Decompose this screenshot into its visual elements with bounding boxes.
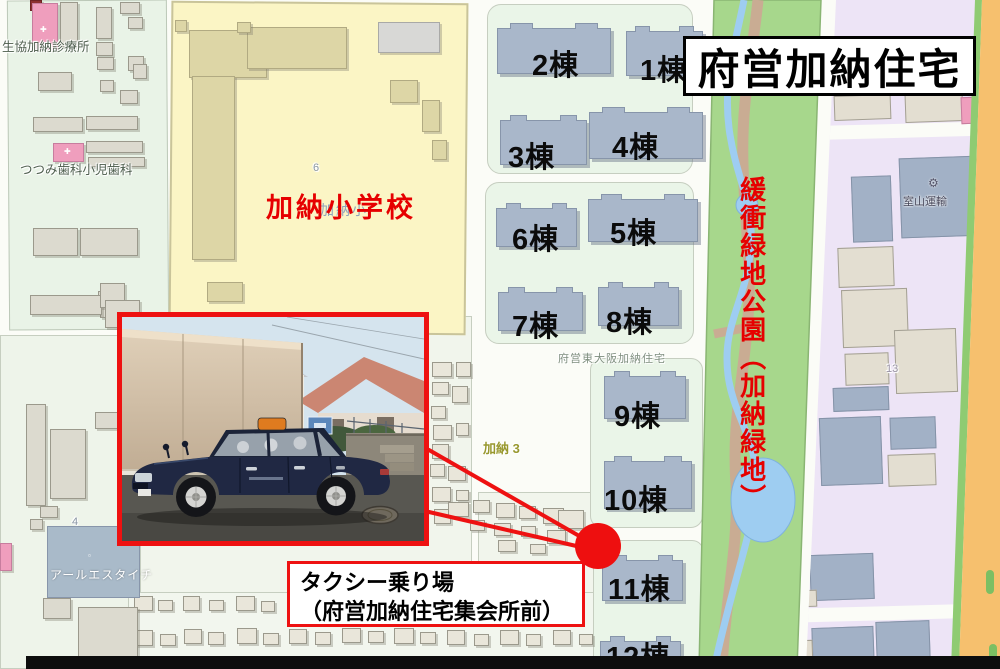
building-label-7: 7棟 xyxy=(512,303,559,345)
hospital-icon: ✚ xyxy=(64,148,71,156)
house xyxy=(96,42,113,56)
house xyxy=(558,510,584,529)
building-label-2: 2棟 xyxy=(532,42,579,84)
taxi-stand-line2: （府営加納住宅集会所前） xyxy=(300,598,572,627)
roof-tab xyxy=(601,194,623,200)
house xyxy=(378,22,440,53)
house xyxy=(50,429,86,499)
house xyxy=(447,630,465,645)
roof-tab xyxy=(614,456,631,462)
building xyxy=(834,94,892,121)
roof-tab xyxy=(635,26,650,32)
house xyxy=(209,600,224,611)
house xyxy=(86,116,138,130)
house xyxy=(192,76,235,260)
house xyxy=(456,490,469,501)
house xyxy=(553,630,571,645)
house xyxy=(496,503,515,518)
roof-tab xyxy=(506,203,522,209)
house xyxy=(247,27,347,69)
house xyxy=(96,7,112,39)
roof-tab xyxy=(560,115,577,121)
building-label-4: 4棟 xyxy=(612,124,659,166)
building xyxy=(875,620,930,660)
road xyxy=(798,604,988,623)
roof-tab xyxy=(667,107,689,113)
house xyxy=(530,544,546,554)
house xyxy=(494,523,511,536)
house xyxy=(26,404,46,506)
house xyxy=(133,64,147,79)
house xyxy=(120,90,138,104)
dental-label: つつみ歯科小児歯科 xyxy=(20,159,133,178)
house xyxy=(237,22,251,33)
muroyama-label: 室山運輸 xyxy=(903,193,947,209)
building-label-11: 11棟 xyxy=(608,566,671,608)
house xyxy=(547,530,566,544)
house xyxy=(521,526,536,537)
building-label-1: 1棟 xyxy=(640,47,687,89)
roof-tab xyxy=(602,107,624,113)
shop-icon: ▫ xyxy=(88,552,91,560)
map-title: 府営加納住宅 xyxy=(683,36,976,96)
hospital-icon: ✚ xyxy=(40,26,47,34)
house xyxy=(100,80,114,92)
roof-tab xyxy=(575,23,597,29)
roof-tab xyxy=(556,287,573,293)
building xyxy=(833,386,890,412)
taxi-roof-sign xyxy=(258,418,286,430)
house xyxy=(432,444,449,459)
district-label: 加納 3 xyxy=(483,438,520,457)
house xyxy=(452,386,468,403)
house xyxy=(315,632,331,645)
annotated-map: ▫ アールエスタイチ 生協加納診療所 ✚ つつみ歯科小児歯科 ✚ 6 加納小 加… xyxy=(0,0,1000,669)
house xyxy=(97,57,114,70)
house xyxy=(432,487,451,502)
house xyxy=(432,140,447,160)
building xyxy=(961,97,975,124)
school-lot-number: 6 xyxy=(313,162,319,174)
roof-tab xyxy=(658,555,674,561)
house xyxy=(33,117,83,132)
building xyxy=(905,92,964,123)
roof-tab xyxy=(508,287,525,293)
factory-icon: ⚙ xyxy=(928,177,939,189)
roof-tab xyxy=(510,115,527,121)
house xyxy=(30,519,43,530)
house xyxy=(498,540,516,552)
lot4-label: 4 xyxy=(72,516,78,528)
building xyxy=(889,416,936,450)
roof-tab xyxy=(654,282,670,288)
park-name-annotation: 緩衝緑地公園（加納緑地） xyxy=(737,176,766,512)
building-label-6: 6棟 xyxy=(512,216,559,258)
house xyxy=(128,17,143,29)
bottom-bar xyxy=(26,656,1000,669)
house xyxy=(263,633,279,645)
house xyxy=(473,500,490,513)
house xyxy=(33,228,78,256)
house xyxy=(474,634,489,646)
house xyxy=(237,628,257,644)
house xyxy=(394,628,414,644)
house xyxy=(422,100,440,132)
rs-taichi-label: アールエスタイチ xyxy=(50,566,153,583)
house xyxy=(432,382,449,395)
house xyxy=(470,520,485,531)
house xyxy=(158,600,173,611)
house xyxy=(0,543,12,571)
roof-tab xyxy=(660,371,676,377)
taxi-stand-line1: タクシー乗り場 xyxy=(300,569,572,598)
house xyxy=(175,20,187,32)
house xyxy=(432,362,452,377)
house xyxy=(184,629,202,644)
industrial-zone xyxy=(798,0,988,669)
building-label-8: 8棟 xyxy=(606,299,653,341)
house xyxy=(448,502,469,517)
house xyxy=(500,630,519,645)
building xyxy=(851,175,893,242)
house xyxy=(579,634,593,645)
house xyxy=(420,632,436,644)
house xyxy=(160,634,176,646)
roof-tab xyxy=(679,26,694,32)
house xyxy=(430,464,445,477)
house xyxy=(526,634,541,646)
school-name-annotation: 加納小学校 xyxy=(266,186,416,225)
house xyxy=(519,506,536,519)
house xyxy=(183,596,200,611)
house xyxy=(43,598,71,619)
building-label-9: 9棟 xyxy=(614,393,661,435)
roof-tab xyxy=(608,282,624,288)
house xyxy=(261,601,275,612)
roof-tab xyxy=(664,194,686,200)
house xyxy=(120,2,140,14)
house xyxy=(86,141,143,153)
building xyxy=(894,328,958,394)
house xyxy=(208,632,224,645)
clinic-label: 生協加納診療所 xyxy=(2,36,90,55)
house xyxy=(80,228,138,256)
building-label-5: 5棟 xyxy=(610,210,657,252)
house xyxy=(368,631,384,643)
building xyxy=(844,352,889,386)
house xyxy=(433,425,452,440)
house xyxy=(207,282,243,302)
house xyxy=(390,80,418,103)
roof-tab xyxy=(664,456,681,462)
roof-tab xyxy=(552,203,568,209)
house xyxy=(342,628,361,643)
house xyxy=(456,423,469,436)
road xyxy=(798,122,988,141)
house xyxy=(30,295,102,315)
house xyxy=(236,596,255,611)
estate-label: 府営東大阪加納住宅 xyxy=(558,350,666,366)
lot13-label: 13 xyxy=(886,363,898,375)
roof-tab xyxy=(510,23,532,29)
building xyxy=(887,453,936,487)
building-label-10: 10棟 xyxy=(604,477,668,519)
house xyxy=(78,607,138,659)
taxi-photo-image xyxy=(122,317,424,541)
house xyxy=(448,466,466,481)
building xyxy=(798,590,818,608)
house xyxy=(289,629,307,644)
house xyxy=(40,506,58,518)
building xyxy=(809,553,875,601)
building xyxy=(819,416,883,486)
house xyxy=(431,406,446,419)
taxi-photo xyxy=(117,312,429,546)
building-label-3: 3棟 xyxy=(508,134,555,176)
taxi-stand-callout: タクシー乗り場 （府営加納住宅集会所前） xyxy=(287,561,585,627)
house xyxy=(456,362,471,377)
building xyxy=(837,246,894,288)
house xyxy=(38,72,72,91)
roof-tab xyxy=(614,371,630,377)
